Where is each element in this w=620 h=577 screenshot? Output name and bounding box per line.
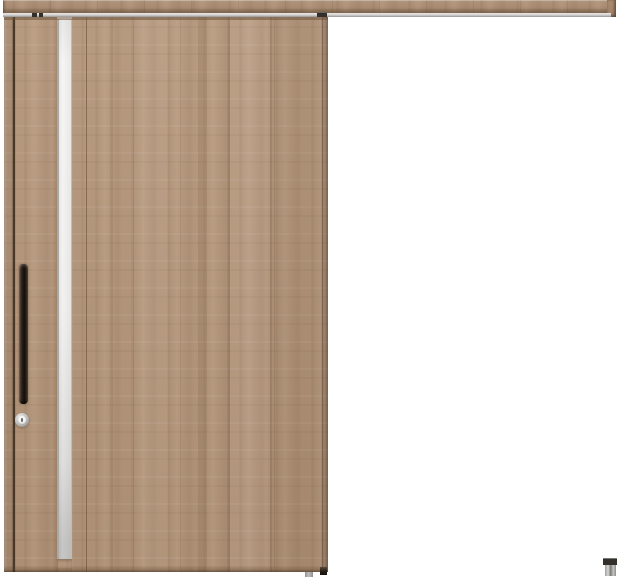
door-corner-hardware xyxy=(320,567,327,575)
wood-grain-streak xyxy=(142,17,168,572)
door-bottom-guide xyxy=(305,572,313,577)
door-top-edge xyxy=(4,17,328,20)
floor-guide-cap xyxy=(603,558,617,565)
door-right-edge xyxy=(322,17,328,572)
door-bar-handle xyxy=(19,264,28,404)
door-mid-stile xyxy=(72,17,86,572)
frosted-glass-slit xyxy=(59,19,71,559)
glass-slit-frame-right xyxy=(71,19,73,559)
door-bottom-edge xyxy=(4,566,328,572)
wood-grain-streak xyxy=(110,17,113,572)
panel-seam xyxy=(86,17,87,572)
wood-grain-streak xyxy=(198,17,207,572)
door-main-panel xyxy=(86,17,322,572)
sliding-door-panel xyxy=(4,17,328,572)
thumbturn-lock xyxy=(15,413,29,427)
door-edge-seam xyxy=(13,17,15,572)
thumbturn-indicator xyxy=(21,418,22,422)
floor-guide xyxy=(603,558,617,576)
hanger-rail-fascia xyxy=(3,0,616,13)
door-left-edge xyxy=(4,17,13,572)
wood-grain-streak xyxy=(230,17,268,572)
wood-grain-streak xyxy=(272,17,322,572)
product-photo-sliding-door xyxy=(0,0,620,576)
glass-slit-frame-left xyxy=(57,19,59,559)
floor-guide-body xyxy=(605,565,616,576)
